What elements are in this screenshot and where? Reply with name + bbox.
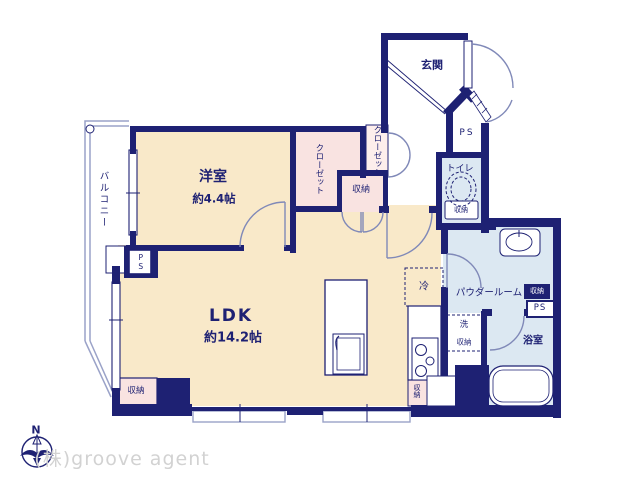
entrance-step-lines bbox=[386, 59, 448, 114]
toilet-tank bbox=[445, 201, 478, 219]
closet-bifold-arc bbox=[388, 155, 410, 177]
kitchen-cabinet bbox=[427, 376, 457, 406]
ldk-side-window bbox=[112, 282, 120, 390]
storage-powder-badge bbox=[524, 284, 550, 299]
closet-bifold-arc bbox=[388, 133, 410, 155]
kitchen-sink bbox=[333, 334, 364, 374]
ps-east-box bbox=[527, 301, 554, 317]
floorplan-canvas: 洋室 約4.4帖 LDK 約14.2帖 玄関 バルコニー クローゼット クローゼ… bbox=[0, 0, 640, 480]
washer-space bbox=[447, 315, 483, 351]
ps-west-box bbox=[129, 250, 151, 274]
compass-icon bbox=[20, 435, 54, 467]
ps-door-leaf-hatched bbox=[469, 91, 491, 122]
western-room-floor bbox=[130, 126, 296, 253]
ldk-bottom-window-left bbox=[193, 411, 285, 422]
floorplan-drawing bbox=[0, 0, 640, 480]
balcony-drain-icon bbox=[86, 125, 94, 133]
entrance-door-arc bbox=[472, 44, 513, 88]
storage-kitchen-floor bbox=[408, 378, 427, 406]
bathtub bbox=[489, 366, 553, 406]
entrance-door-leaf bbox=[464, 41, 472, 88]
ps-door-arc bbox=[487, 100, 512, 122]
